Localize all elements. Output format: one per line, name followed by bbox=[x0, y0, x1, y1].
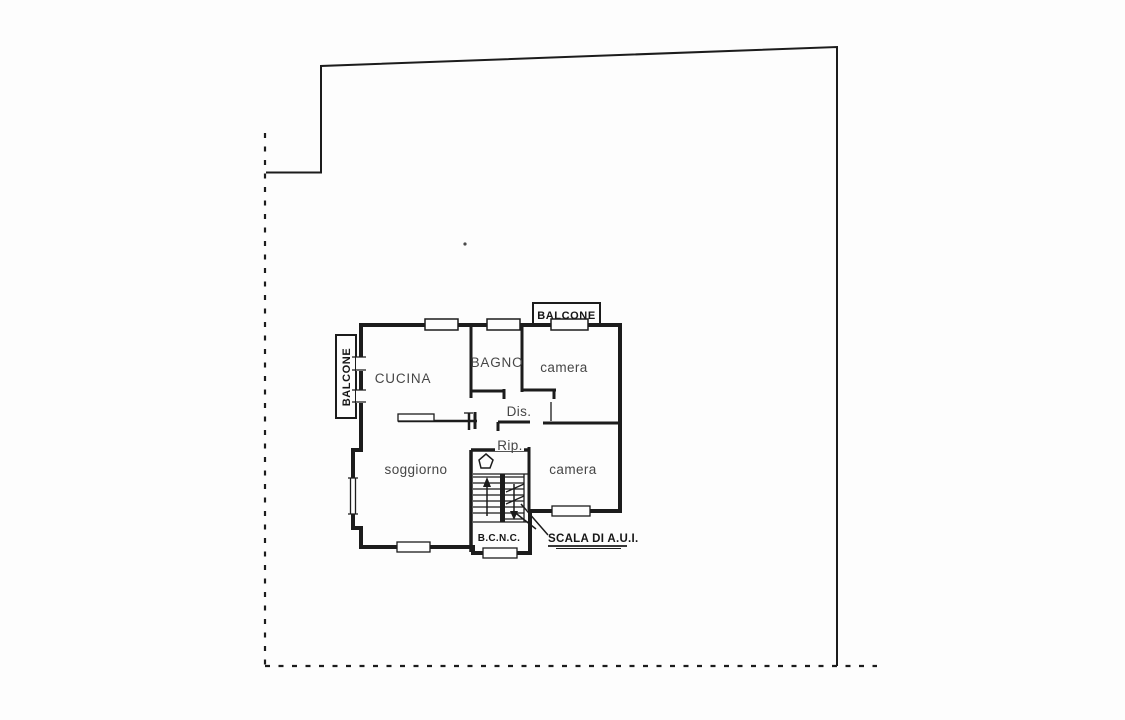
window-living-room-bottom bbox=[397, 542, 430, 552]
scan-artifact-dot bbox=[463, 242, 466, 245]
room-label-bcnc: B.C.N.C. bbox=[478, 533, 520, 544]
stair-divider bbox=[500, 474, 505, 522]
window-bedroom-top bbox=[551, 319, 588, 330]
room-label-dis: Dis. bbox=[507, 404, 532, 419]
staircase bbox=[473, 454, 528, 522]
window-bathroom-top bbox=[487, 319, 520, 330]
room-label-rip: Rip. bbox=[497, 438, 523, 453]
scala-annotation-text: SCALA DI A.U.I. bbox=[548, 533, 639, 545]
window-stairwell-bottom bbox=[483, 548, 517, 558]
window-symbols bbox=[348, 319, 590, 558]
room-label-camera-lower: camera bbox=[549, 462, 597, 477]
window-bedroom-bottom bbox=[552, 506, 590, 516]
floor-plan-canvas: BALCONE BALCONE bbox=[0, 0, 1125, 720]
room-label-soggiorno: soggiorno bbox=[385, 462, 448, 477]
bay-window bbox=[348, 478, 358, 515]
scala-annotation: SCALA DI A.U.I. bbox=[548, 533, 639, 549]
door-symbol-pentagon bbox=[479, 454, 493, 468]
room-label-camera-upper: camera bbox=[540, 360, 588, 375]
balcony-left-label: BALCONE bbox=[341, 348, 353, 407]
room-label-bagno: BAGNO bbox=[471, 355, 524, 370]
scanned-floor-plan-page: BALCONE BALCONE bbox=[0, 0, 1125, 720]
window-kitchen-top bbox=[425, 319, 458, 330]
room-label-cucina: CUCINA bbox=[375, 371, 432, 386]
balcony-left: BALCONE bbox=[336, 335, 356, 418]
